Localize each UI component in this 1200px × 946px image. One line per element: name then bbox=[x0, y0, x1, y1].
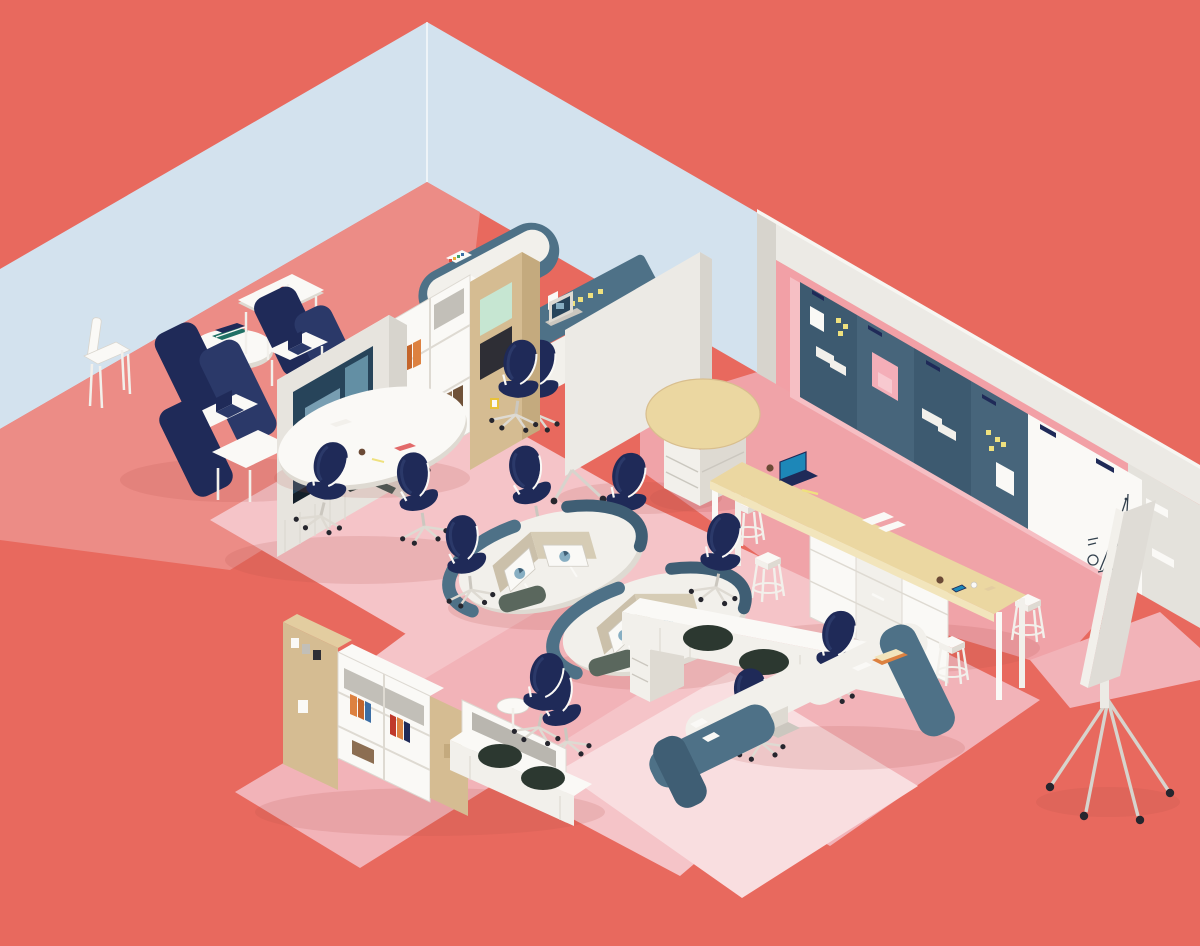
photo-chip bbox=[313, 650, 321, 660]
mug bbox=[936, 576, 943, 583]
sticky-note bbox=[836, 318, 841, 323]
round-cushion bbox=[683, 625, 733, 651]
book bbox=[358, 698, 364, 720]
printer-detail bbox=[453, 257, 456, 260]
sticky-note bbox=[986, 430, 991, 435]
book bbox=[413, 339, 421, 368]
caster bbox=[551, 498, 558, 505]
sticky-note bbox=[995, 437, 1000, 442]
counter-leg bbox=[1019, 598, 1025, 688]
cup bbox=[971, 582, 977, 588]
chart-dot bbox=[1125, 498, 1128, 501]
photo-chip bbox=[302, 644, 310, 654]
printer-detail bbox=[461, 253, 464, 256]
sticky-note bbox=[588, 293, 593, 298]
office-illustration bbox=[0, 0, 1200, 946]
round-top bbox=[646, 379, 760, 449]
book bbox=[390, 714, 396, 737]
pedestal-front bbox=[630, 640, 650, 702]
sticky-note bbox=[843, 324, 848, 329]
round-cushion bbox=[521, 766, 565, 790]
caster bbox=[1136, 816, 1144, 824]
book bbox=[350, 694, 357, 717]
book bbox=[397, 717, 403, 740]
sticky-note bbox=[578, 297, 583, 302]
caster bbox=[1046, 783, 1054, 791]
book bbox=[365, 701, 371, 723]
sticky-note bbox=[989, 446, 994, 451]
caster bbox=[1080, 812, 1088, 820]
mug bbox=[359, 449, 366, 456]
counter-leg bbox=[996, 612, 1002, 700]
badge-inner bbox=[492, 400, 497, 407]
caster bbox=[1166, 789, 1174, 797]
sticky-note bbox=[838, 331, 843, 336]
whiteboard-shadow bbox=[1036, 787, 1180, 817]
sticky-note bbox=[598, 289, 603, 294]
photo-chip bbox=[291, 638, 299, 648]
printer-detail bbox=[457, 255, 460, 258]
cabinet-card bbox=[298, 700, 308, 713]
sticky-note bbox=[1001, 442, 1006, 447]
wall-left-edge bbox=[757, 213, 776, 384]
mug bbox=[766, 464, 773, 471]
laptop-window bbox=[556, 303, 564, 309]
round-cushion bbox=[478, 744, 522, 768]
printer-detail bbox=[449, 259, 452, 262]
book bbox=[404, 721, 410, 743]
